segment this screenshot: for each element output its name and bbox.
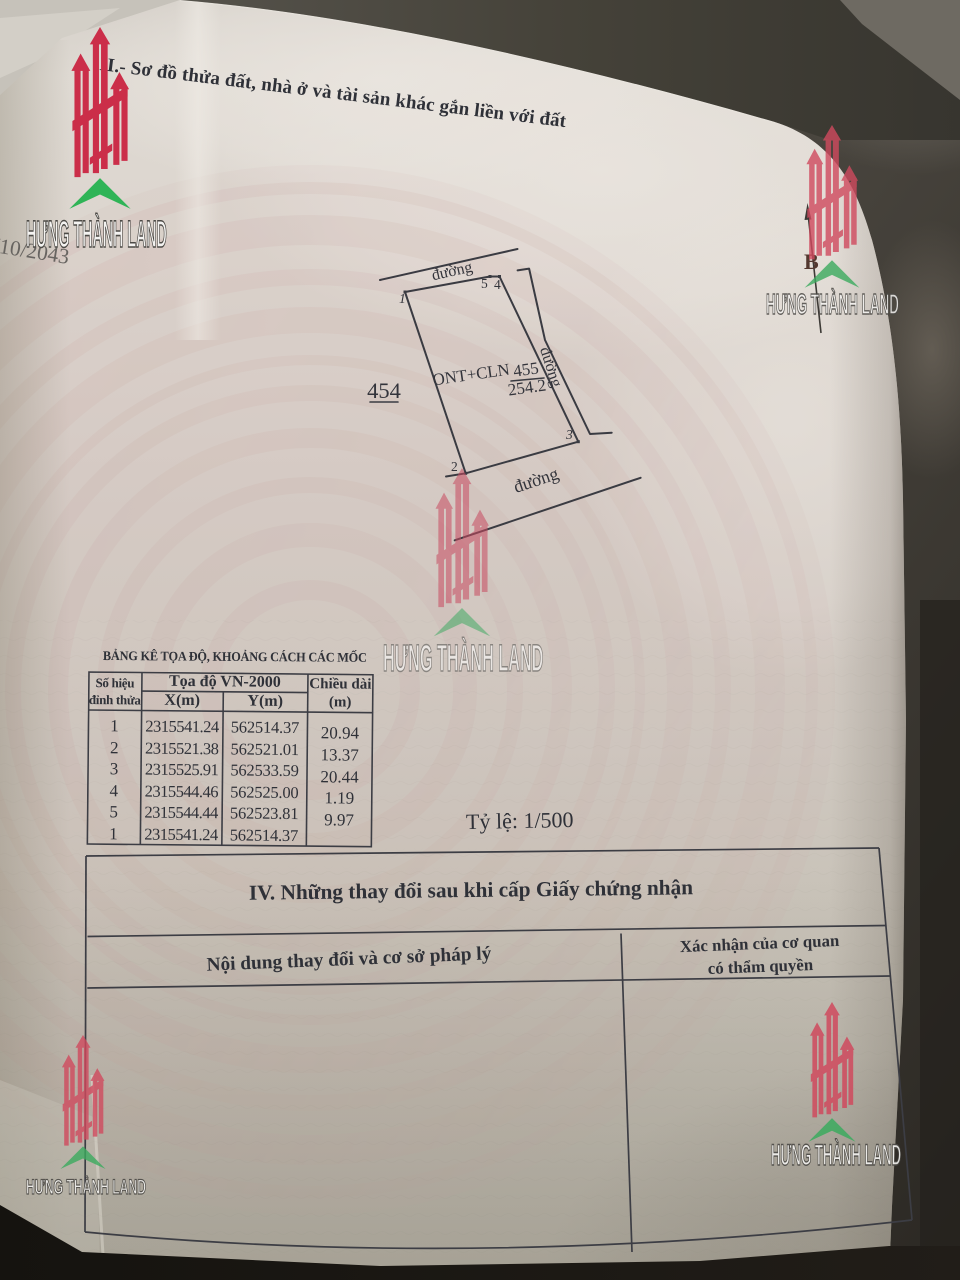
svg-text:454: 454: [367, 378, 401, 403]
svg-text:254.2: 254.2: [507, 375, 548, 399]
svg-text:3: 3: [565, 427, 573, 442]
svg-text:1: 1: [399, 291, 406, 306]
svg-text:4: 4: [494, 277, 501, 292]
svg-text:đường: đường: [511, 463, 561, 497]
svg-text:5: 5: [481, 276, 488, 291]
svg-text:ONT+CLN: ONT+CLN: [431, 360, 510, 390]
